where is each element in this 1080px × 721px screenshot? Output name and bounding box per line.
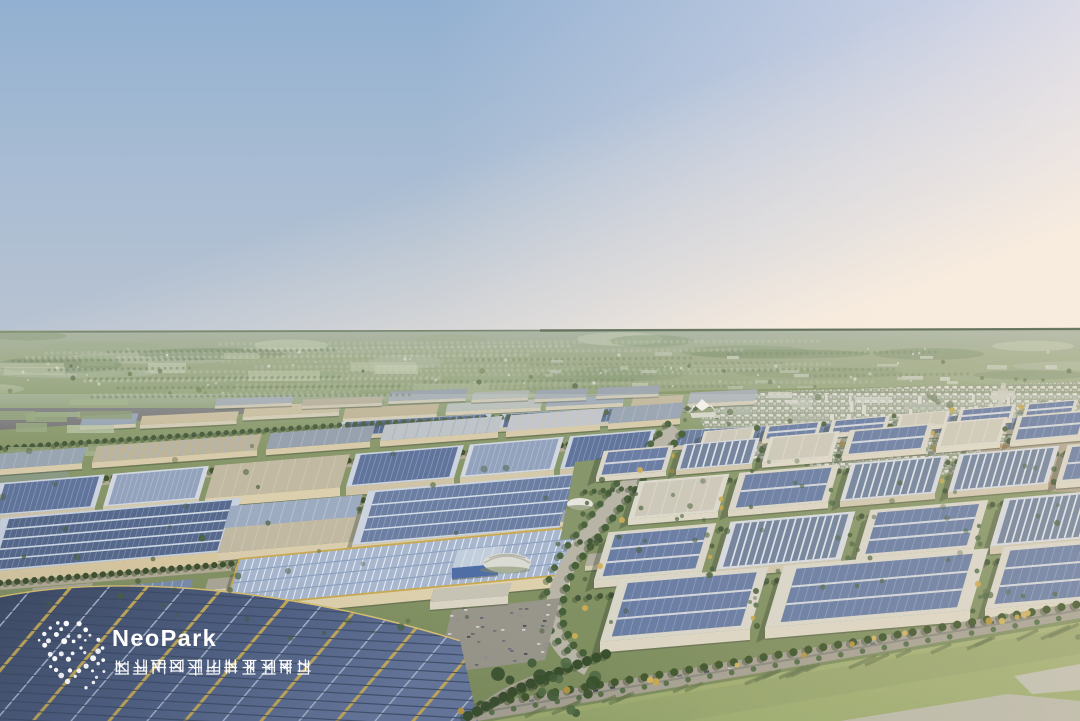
svg-text:NeoPark: NeoPark [112, 625, 217, 651]
